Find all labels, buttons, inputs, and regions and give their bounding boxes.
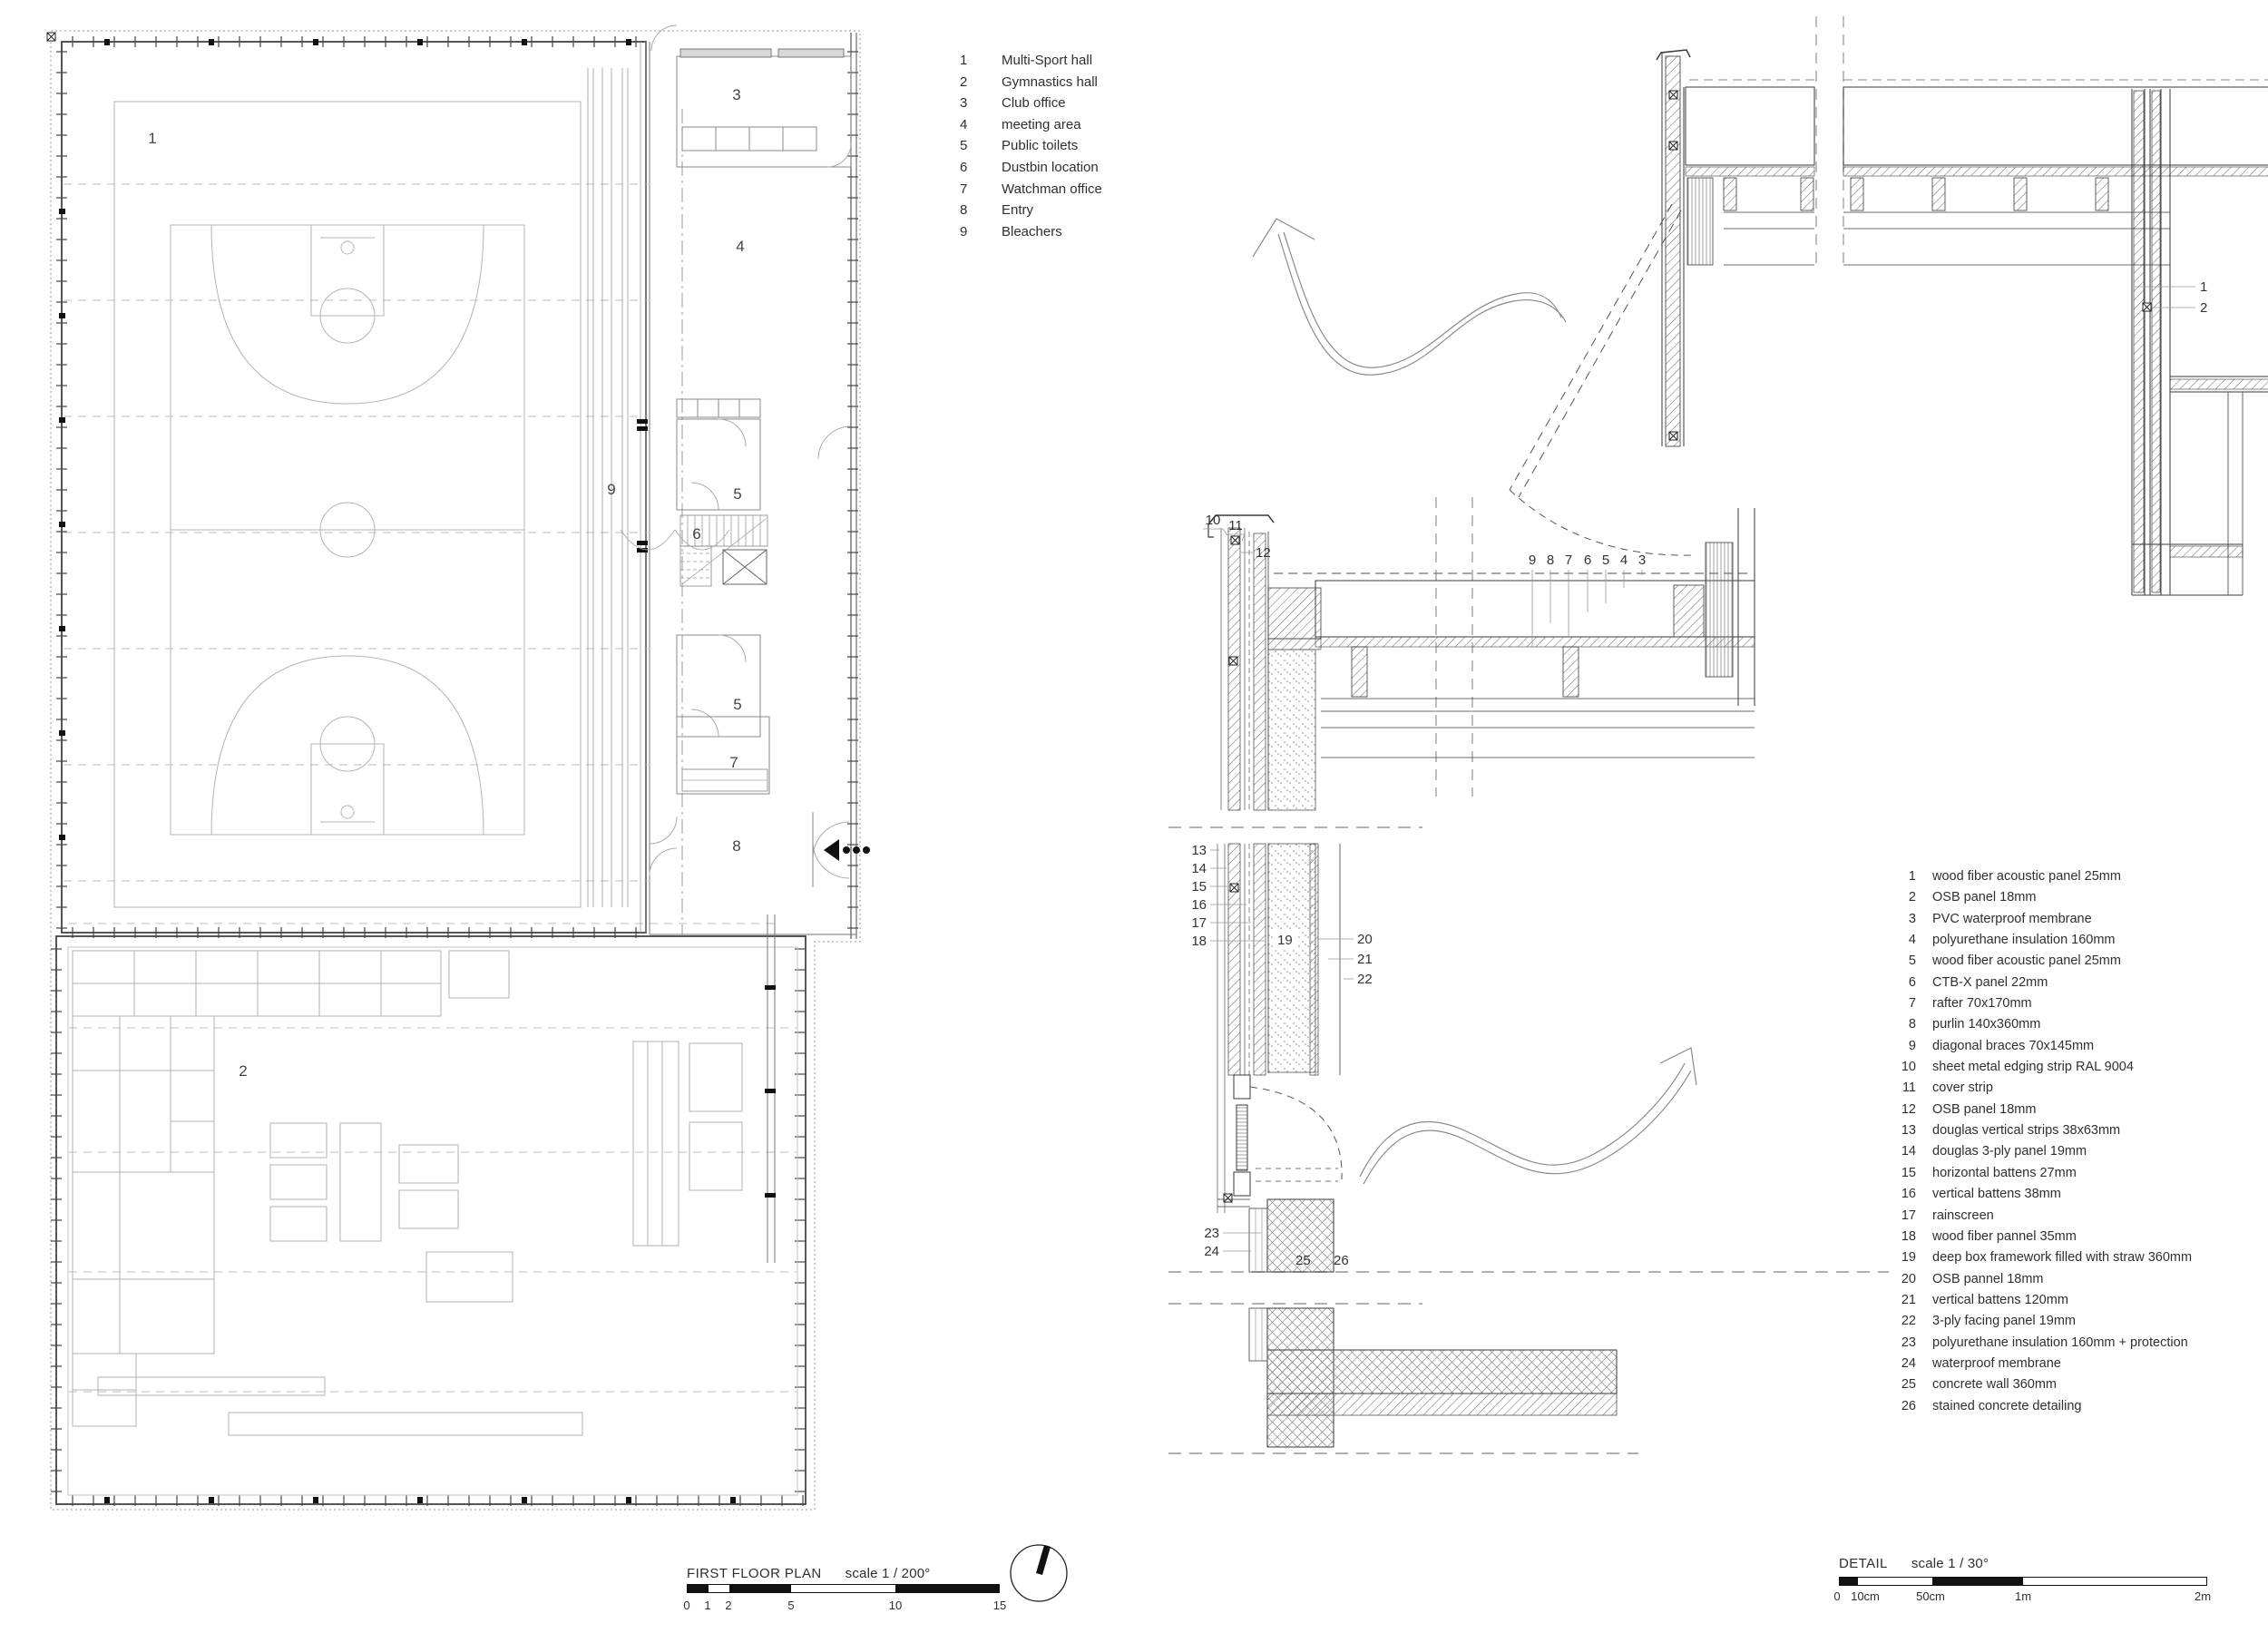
club-office xyxy=(651,25,851,167)
window-head xyxy=(1234,1075,1250,1099)
legend-num: 14 xyxy=(1887,1144,1916,1159)
legend-label: purlin 140x360mm xyxy=(1932,1017,2040,1032)
plan-scale-tick: 2 xyxy=(725,1599,731,1612)
legend-item: 223-ply facing panel 19mm xyxy=(1887,1314,2268,1335)
callout-9: 9 xyxy=(1529,552,1536,568)
window-frame xyxy=(1237,1105,1247,1170)
legend-label: Bleachers xyxy=(1002,224,1062,240)
legend-item: 23polyurethane insulation 160mm + protec… xyxy=(1887,1335,2268,1356)
flow-arrow-lower xyxy=(1360,1048,1696,1184)
callout-17: 17 xyxy=(1191,915,1207,931)
grid-lines xyxy=(64,184,797,1392)
room-label-dustbin: 6 xyxy=(692,525,700,543)
legend-label: Multi-Sport hall xyxy=(1002,53,1092,68)
legend-label: vertical battens 38mm xyxy=(1932,1187,2061,1201)
legend-item: 11cover strip xyxy=(1887,1081,2268,1101)
basketball-court xyxy=(171,225,524,835)
legend-num: 8 xyxy=(960,202,1002,218)
detail-scale-tick: 1m xyxy=(2015,1589,2031,1603)
legend-item: 2Gymnastics hall xyxy=(960,74,1232,96)
legend-num: 11 xyxy=(1887,1081,1916,1095)
legend-label: douglas vertical strips 38x63mm xyxy=(1932,1123,2120,1138)
legend-item: 7Watchman office xyxy=(960,181,1232,203)
legend-label: cover strip xyxy=(1932,1081,1993,1095)
callout-3: 3 xyxy=(1638,552,1646,568)
legend-item: 20OSB pannel 18mm xyxy=(1887,1272,2268,1293)
legend-item: 19deep box framework filled with straw 3… xyxy=(1887,1250,2268,1271)
legend-item: 6Dustbin location xyxy=(960,160,1232,181)
legend-num: 7 xyxy=(960,181,1002,197)
entry-zone xyxy=(650,812,849,887)
legend-item: 9diagonal braces 70x145mm xyxy=(1887,1039,2268,1060)
legend-label: CTB-X panel 22mm xyxy=(1932,975,2048,990)
legend-label: vertical battens 120mm xyxy=(1932,1293,2068,1307)
legend-item: 14douglas 3-ply panel 19mm xyxy=(1887,1144,2268,1165)
legend-item: 18wood fiber pannel 35mm xyxy=(1887,1229,2268,1250)
plan-scale-tick: 0 xyxy=(683,1599,689,1612)
multisport-hall-walls xyxy=(62,42,646,933)
room-label-toilets-a: 5 xyxy=(733,485,741,503)
legend-label: sheet metal edging strip RAL 9004 xyxy=(1932,1060,2134,1074)
callout-19: 19 xyxy=(1277,933,1293,948)
architectural-sheet: 1 2 3 4 5 6 5 7 8 9 xyxy=(0,0,2268,1633)
legend-num: 5 xyxy=(960,138,1002,153)
bleachers xyxy=(588,42,648,933)
legend-num: 1 xyxy=(960,53,1002,68)
elevator xyxy=(723,550,767,584)
legend-item: 26stained concrete detailing xyxy=(1887,1399,2268,1420)
legend-item: 17rainscreen xyxy=(1887,1208,2268,1229)
legend-label: Watchman office xyxy=(1002,181,1102,197)
break-lines xyxy=(1436,16,1843,797)
legend-num: 22 xyxy=(1887,1314,1916,1328)
legend-item: 16vertical battens 38mm xyxy=(1887,1187,2268,1208)
legend-num: 1 xyxy=(1887,869,1916,884)
detail-legend: 1wood fiber acoustic panel 25mm 2OSB pan… xyxy=(1887,869,2268,1420)
room-label-meeting: 4 xyxy=(736,238,744,255)
legend-label: douglas 3-ply panel 19mm xyxy=(1932,1144,2087,1159)
gym-hall-walls xyxy=(56,936,806,1504)
legend-label: Club office xyxy=(1002,95,1066,111)
plan-scale-bar xyxy=(687,1584,1000,1593)
legend-num: 18 xyxy=(1887,1229,1916,1244)
legend-num: 6 xyxy=(1887,975,1916,990)
legend-label: polyurethane insulation 160mm + protecti… xyxy=(1932,1335,2188,1350)
plan-scale-tick: 10 xyxy=(889,1599,902,1612)
legend-label: PVC waterproof membrane xyxy=(1932,912,2092,926)
plan-scale-tick: 1 xyxy=(704,1599,710,1612)
legend-label: wood fiber acoustic panel 25mm xyxy=(1932,953,2121,968)
callout-21: 21 xyxy=(1357,952,1373,967)
legend-label: Entry xyxy=(1002,202,1033,218)
plan-scale-text: scale 1 / 200° xyxy=(846,1566,931,1581)
legend-item: 8Entry xyxy=(960,202,1232,224)
legend-item: 4meeting area xyxy=(960,117,1232,139)
callout-13: 13 xyxy=(1191,843,1207,858)
legend-item: 6CTB-X panel 22mm xyxy=(1887,975,2268,996)
gym-equipment xyxy=(73,951,742,1435)
legend-num: 13 xyxy=(1887,1123,1916,1138)
window-sill xyxy=(1234,1172,1250,1196)
callout-22: 22 xyxy=(1357,972,1373,987)
callout-16: 16 xyxy=(1191,897,1207,913)
public-toilets-upper xyxy=(677,399,851,510)
entry-arrow-icon xyxy=(824,839,870,861)
callout-4: 4 xyxy=(1620,552,1628,568)
callout-8: 8 xyxy=(1547,552,1554,568)
legend-label: waterproof membrane xyxy=(1932,1356,2061,1371)
legend-num: 23 xyxy=(1887,1335,1916,1350)
legend-num: 15 xyxy=(1887,1166,1916,1180)
legend-item: 5Public toilets xyxy=(960,138,1232,160)
legend-label: OSB pannel 18mm xyxy=(1932,1272,2044,1286)
legend-num: 26 xyxy=(1887,1399,1916,1413)
callout-2: 2 xyxy=(2200,300,2207,316)
legend-label: 3-ply facing panel 19mm xyxy=(1932,1314,2076,1328)
legend-label: rafter 70x170mm xyxy=(1932,996,2032,1011)
plan-title: FIRST FLOOR PLANscale 1 / 200° xyxy=(687,1566,931,1581)
flow-arrow-upper xyxy=(1253,219,1566,375)
legend-item: 1wood fiber acoustic panel 25mm xyxy=(1887,869,2268,890)
callout-1: 1 xyxy=(2200,279,2207,295)
legend-label: rainscreen xyxy=(1932,1208,1994,1223)
detail-title: DETAILscale 1 / 30° xyxy=(1839,1556,1989,1571)
legend-label: concrete wall 360mm xyxy=(1932,1377,2057,1392)
legend-label: deep box framework filled with straw 360… xyxy=(1932,1250,2192,1265)
callout-5: 5 xyxy=(1602,552,1609,568)
legend-num: 25 xyxy=(1887,1377,1916,1392)
room-label-bleachers: 9 xyxy=(607,481,615,498)
legend-item: 21vertical battens 120mm xyxy=(1887,1293,2268,1314)
left-wall-section xyxy=(1217,844,1342,1272)
legend-item: 8purlin 140x360mm xyxy=(1887,1017,2268,1038)
detail-scale-tick: 10cm xyxy=(1851,1589,1880,1603)
callout-14: 14 xyxy=(1191,861,1207,876)
legend-item: 9Bleachers xyxy=(960,224,1232,246)
legend-label: wood fiber acoustic panel 25mm xyxy=(1932,869,2121,884)
legend-num: 19 xyxy=(1887,1250,1916,1265)
legend-label: polyurethane insulation 160mm xyxy=(1932,933,2116,947)
legend-label: Dustbin location xyxy=(1002,160,1099,175)
north-symbol-icon xyxy=(1011,1545,1067,1601)
detail-scale-tick: 0 xyxy=(1833,1589,1840,1603)
legend-num: 3 xyxy=(960,95,1002,111)
legend-num: 2 xyxy=(960,74,1002,90)
legend-num: 16 xyxy=(1887,1187,1916,1201)
room-label-toilets-b: 5 xyxy=(733,696,741,713)
legend-item: 2OSB panel 18mm xyxy=(1887,890,2268,911)
room-label-multisport: 1 xyxy=(148,130,156,147)
legend-num: 4 xyxy=(1887,933,1916,947)
legend-label: diagonal braces 70x145mm xyxy=(1932,1039,2094,1053)
legend-label: OSB panel 18mm xyxy=(1932,890,2036,905)
watchman-office xyxy=(677,717,769,794)
legend-label: OSB panel 18mm xyxy=(1932,1102,2036,1117)
legend-label: Public toilets xyxy=(1002,138,1078,153)
legend-label: horizontal battens 27mm xyxy=(1932,1166,2077,1180)
legend-label: Gymnastics hall xyxy=(1002,74,1098,90)
right-wall-section xyxy=(2132,53,2268,595)
room-label-entry: 8 xyxy=(732,837,740,855)
legend-num: 17 xyxy=(1887,1208,1916,1223)
legend-num: 3 xyxy=(1887,912,1916,926)
legend-num: 5 xyxy=(1887,953,1916,968)
legend-num: 2 xyxy=(1887,890,1916,905)
callout-6: 6 xyxy=(1584,552,1591,568)
plan-legend: 1Multi-Sport hall 2Gymnastics hall 3Club… xyxy=(960,53,1232,245)
legend-num: 9 xyxy=(960,224,1002,240)
callout-26: 26 xyxy=(1334,1253,1349,1268)
detail-scale-bar xyxy=(1839,1577,2207,1586)
callout-15: 15 xyxy=(1191,879,1207,895)
legend-num: 7 xyxy=(1887,996,1916,1011)
legend-item: 12OSB panel 18mm xyxy=(1887,1102,2268,1123)
plan-scale-tick: 5 xyxy=(787,1599,794,1612)
callout-23: 23 xyxy=(1204,1226,1219,1241)
public-toilets-lower xyxy=(677,635,760,737)
legend-num: 12 xyxy=(1887,1102,1916,1117)
callout-11: 11 xyxy=(1228,518,1243,533)
callout-10: 10 xyxy=(1206,513,1221,528)
callout-7: 7 xyxy=(1565,552,1572,568)
legend-num: 4 xyxy=(960,117,1002,132)
floor-plan: 1 2 3 4 5 6 5 7 8 9 xyxy=(47,25,1067,1601)
callout-18: 18 xyxy=(1191,934,1207,949)
legend-item: 10sheet metal edging strip RAL 9004 xyxy=(1887,1060,2268,1081)
legend-item: 4polyurethane insulation 160mm xyxy=(1887,933,2268,953)
callout-24: 24 xyxy=(1204,1244,1219,1259)
plan-title-text: FIRST FLOOR PLAN xyxy=(687,1566,822,1581)
legend-item: 25concrete wall 360mm xyxy=(1887,1377,2268,1398)
lower-roof-assembly xyxy=(1274,508,1755,758)
detail-title-text: DETAIL xyxy=(1839,1556,1888,1571)
foundation-section xyxy=(1249,1308,1617,1447)
room-label-watchman: 7 xyxy=(729,754,738,771)
callout-25: 25 xyxy=(1295,1253,1311,1268)
room-label-office: 3 xyxy=(732,86,740,103)
legend-num: 20 xyxy=(1887,1272,1916,1286)
legend-item: 5wood fiber acoustic panel 25mm xyxy=(1887,953,2268,974)
callout-20: 20 xyxy=(1357,932,1373,947)
legend-num: 6 xyxy=(960,160,1002,175)
detail-scale-tick: 2m xyxy=(2195,1589,2211,1603)
legend-item: 24waterproof membrane xyxy=(1887,1356,2268,1377)
legend-num: 21 xyxy=(1887,1293,1916,1307)
detail-scale-tick: 50cm xyxy=(1916,1589,1945,1603)
door-swing-arc xyxy=(1250,1087,1342,1179)
legend-label: meeting area xyxy=(1002,117,1081,132)
legend-item: 15horizontal battens 27mm xyxy=(1887,1166,2268,1187)
legend-label: wood fiber pannel 35mm xyxy=(1932,1229,2077,1244)
legend-num: 10 xyxy=(1887,1060,1916,1074)
legend-num: 8 xyxy=(1887,1017,1916,1032)
legend-label: stained concrete detailing xyxy=(1932,1399,2081,1413)
room-label-gym: 2 xyxy=(239,1062,247,1080)
legend-item: 13douglas vertical strips 38x63mm xyxy=(1887,1123,2268,1144)
legend-item: 7rafter 70x170mm xyxy=(1887,996,2268,1017)
legend-num: 9 xyxy=(1887,1039,1916,1053)
detail-scale-text: scale 1 / 30° xyxy=(1911,1556,1989,1571)
callout-12: 12 xyxy=(1256,545,1271,561)
legend-item: 3Club office xyxy=(960,95,1232,117)
plan-scale-tick: 15 xyxy=(993,1599,1006,1612)
legend-item: 3PVC waterproof membrane xyxy=(1887,912,2268,933)
legend-num: 24 xyxy=(1887,1356,1916,1371)
legend-item: 1Multi-Sport hall xyxy=(960,53,1232,74)
